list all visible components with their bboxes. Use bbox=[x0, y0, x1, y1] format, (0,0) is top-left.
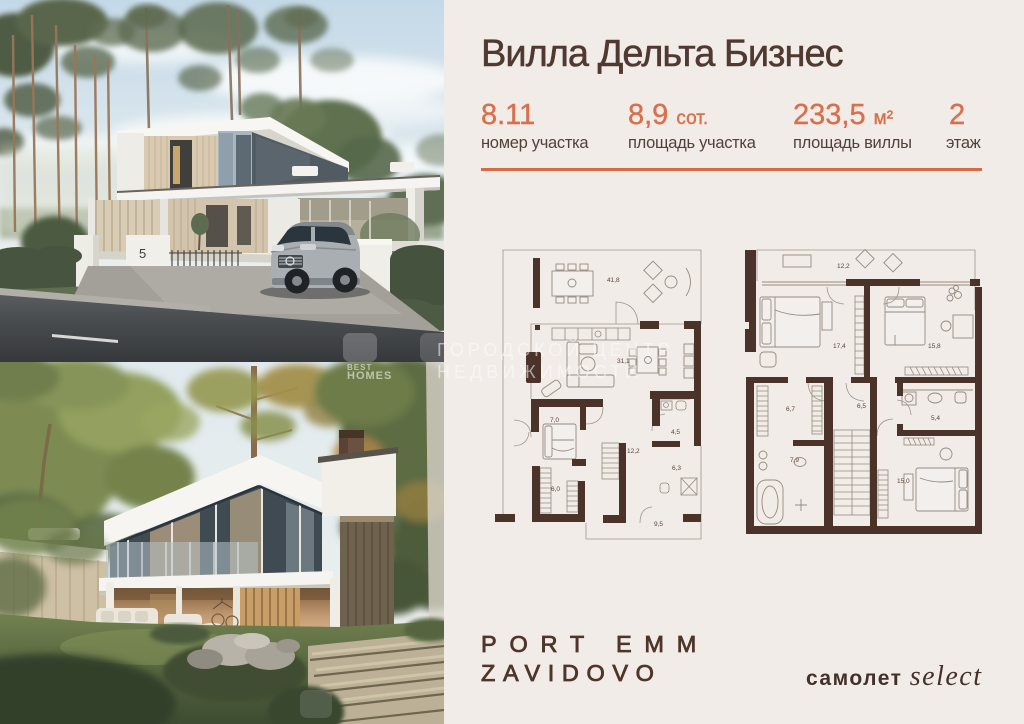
svg-text:5,4: 5,4 bbox=[931, 415, 940, 422]
svg-text:17,4: 17,4 bbox=[833, 343, 846, 350]
svg-text:15,0: 15,0 bbox=[897, 478, 910, 485]
svg-text:6,7: 6,7 bbox=[786, 406, 795, 413]
svg-text:6,0: 6,0 bbox=[551, 486, 560, 493]
svg-text:7,0: 7,0 bbox=[550, 417, 559, 424]
svg-text:9,5: 9,5 bbox=[654, 521, 663, 528]
svg-text:12,2: 12,2 bbox=[627, 448, 640, 455]
svg-text:6,3: 6,3 bbox=[672, 465, 681, 472]
svg-text:4,5: 4,5 bbox=[671, 429, 680, 436]
svg-text:41,8: 41,8 bbox=[607, 277, 620, 284]
svg-text:6,5: 6,5 bbox=[857, 403, 866, 410]
svg-text:7,9: 7,9 bbox=[790, 457, 799, 464]
svg-text:5: 5 bbox=[139, 246, 146, 261]
svg-text:15,8: 15,8 bbox=[928, 343, 941, 350]
svg-text:12,2: 12,2 bbox=[837, 263, 850, 270]
